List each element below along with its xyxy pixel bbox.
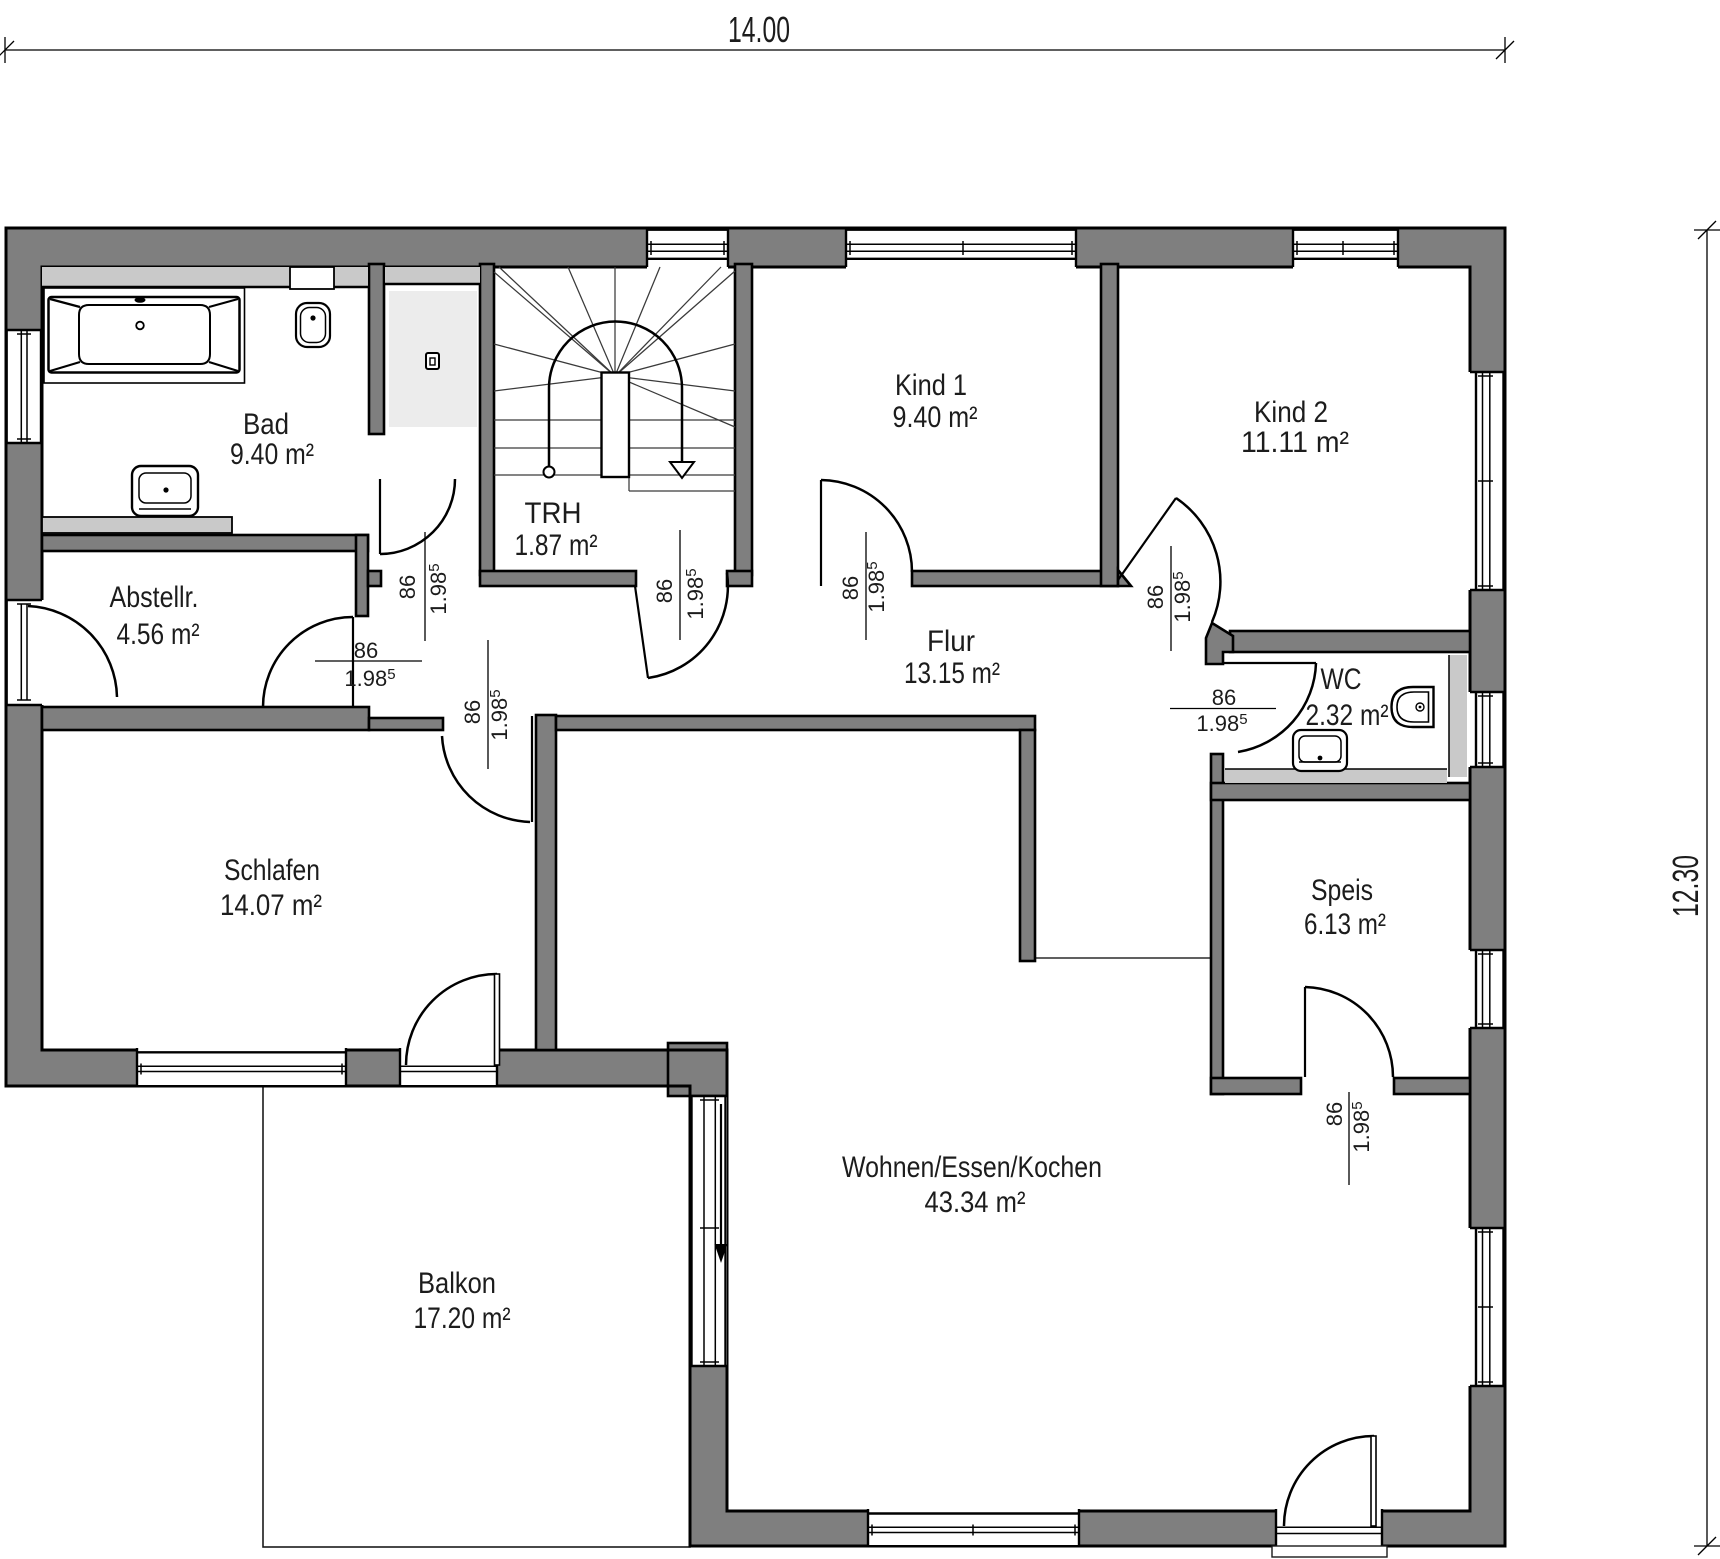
svg-text:Flur: Flur [927,625,975,658]
svg-text:86: 86 [1143,585,1168,609]
svg-text:Schlafen: Schlafen [224,854,320,887]
svg-text:6.13 m²: 6.13 m² [1304,908,1386,941]
svg-text:86: 86 [1212,685,1236,710]
svg-text:86: 86 [395,575,420,599]
svg-text:14.07 m²: 14.07 m² [220,889,322,922]
svg-text:TRH: TRH [525,497,582,530]
svg-text:12.30: 12.30 [1665,855,1706,917]
svg-text:1.87 m²: 1.87 m² [515,529,598,562]
svg-text:17.20 m²: 17.20 m² [414,1302,511,1335]
svg-text:Abstellr.: Abstellr. [110,581,199,614]
svg-text:86: 86 [1322,1102,1347,1126]
svg-text:WC: WC [1321,663,1362,696]
svg-text:9.40 m²: 9.40 m² [893,401,978,434]
svg-text:9.40 m²: 9.40 m² [230,438,314,471]
svg-text:Speis: Speis [1311,874,1373,907]
svg-text:2.32 m²: 2.32 m² [1306,699,1389,732]
svg-text:14.00: 14.00 [728,9,790,50]
svg-text:86: 86 [652,579,677,603]
svg-text:Balkon: Balkon [418,1267,496,1300]
svg-text:Bad: Bad [243,408,289,441]
svg-text:Wohnen/Essen/Kochen: Wohnen/Essen/Kochen [842,1151,1102,1184]
svg-text:4.56 m²: 4.56 m² [117,618,200,651]
svg-text:Kind 2: Kind 2 [1254,396,1328,429]
svg-text:43.34 m²: 43.34 m² [925,1186,1026,1219]
svg-text:Kind 1: Kind 1 [895,369,967,402]
svg-text:11.11 m²: 11.11 m² [1241,426,1349,459]
svg-text:86: 86 [460,700,485,724]
svg-text:13.15 m²: 13.15 m² [904,657,1000,690]
svg-text:86: 86 [354,638,378,663]
svg-text:86: 86 [838,576,863,600]
